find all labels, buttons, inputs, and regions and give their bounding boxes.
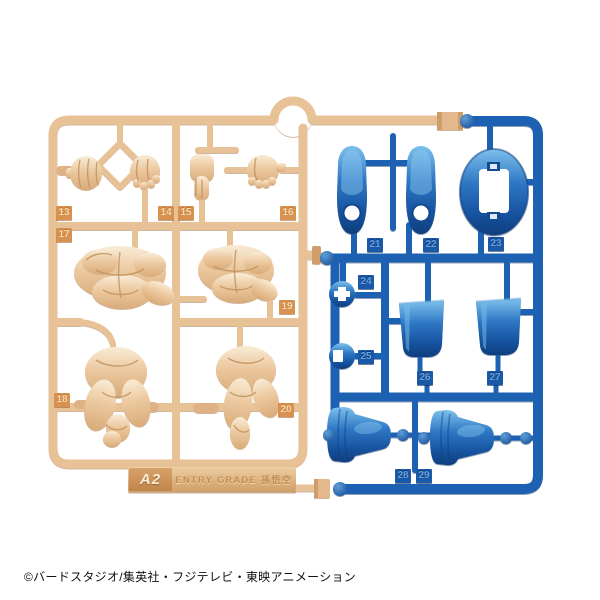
part-tag-18: 18 [54, 393, 70, 407]
product-photo: 13 14 15 16 17 18 19 20 21 22 23 24 25 2… [0, 0, 600, 600]
part-tag-22: 22 [423, 238, 439, 252]
boot-part-28 [327, 407, 409, 462]
part-tag-14: 14 [158, 206, 174, 220]
runner-title: ENTRY GRADE 孫悟空 [172, 473, 296, 486]
runner-joint-top [437, 112, 463, 130]
boot-part-29 [430, 410, 512, 465]
runner-code-tab: A2 [129, 468, 172, 491]
part-tag-25: 25 [358, 350, 374, 364]
part-tag-17: 17 [56, 228, 72, 242]
hand-part-grip [247, 155, 286, 188]
part-tag-27: 27 [487, 371, 503, 385]
runner-joint-bottom [294, 479, 330, 498]
wristband-part-26 [399, 301, 444, 357]
wristband-part-27 [476, 299, 521, 355]
sprue-artwork [0, 0, 600, 600]
sprue-ball [520, 432, 532, 444]
part-tag-16: 16 [280, 206, 296, 220]
joint-part-24 [329, 281, 355, 307]
gate-stub [193, 403, 219, 413]
part-tag-24: 24 [358, 275, 374, 289]
part-tag-26: 26 [417, 371, 433, 385]
blue-runner [320, 114, 538, 496]
part-tag-15: 15 [178, 206, 194, 220]
sprue-ball [418, 432, 430, 444]
copyright-text: ©バードスタジオ/集英社・フジテレビ・東映アニメーション [24, 568, 356, 585]
sprue-ball [333, 482, 347, 496]
sprue-ball [460, 114, 474, 128]
hand-part-fist-left [66, 156, 102, 190]
torso-part-19 [198, 245, 281, 305]
part-tag-20: 20 [278, 403, 294, 417]
part-tag-13: 13 [56, 206, 72, 220]
part-tag-21: 21 [367, 238, 383, 252]
joint-part-25 [329, 343, 355, 369]
boot-sole-part-21 [337, 146, 367, 234]
part-tag-29: 29 [416, 469, 432, 483]
boot-sole-part-22 [406, 146, 436, 234]
lower-body-part-18 [79, 347, 155, 447]
part-tag-23: 23 [488, 237, 504, 251]
sprue-ball [323, 429, 335, 441]
hand-part-open [190, 154, 214, 200]
part-tag-19: 19 [279, 300, 295, 314]
hand-part-fist-right [130, 155, 160, 190]
sprue-ball [320, 251, 334, 265]
part-tag-28: 28 [395, 469, 411, 483]
torso-part-17 [74, 246, 178, 309]
lower-body-part-20 [216, 346, 284, 449]
ring-part-23 [460, 149, 528, 235]
runner-label-plate: A2 ENTRY GRADE 孫悟空 [128, 467, 296, 492]
